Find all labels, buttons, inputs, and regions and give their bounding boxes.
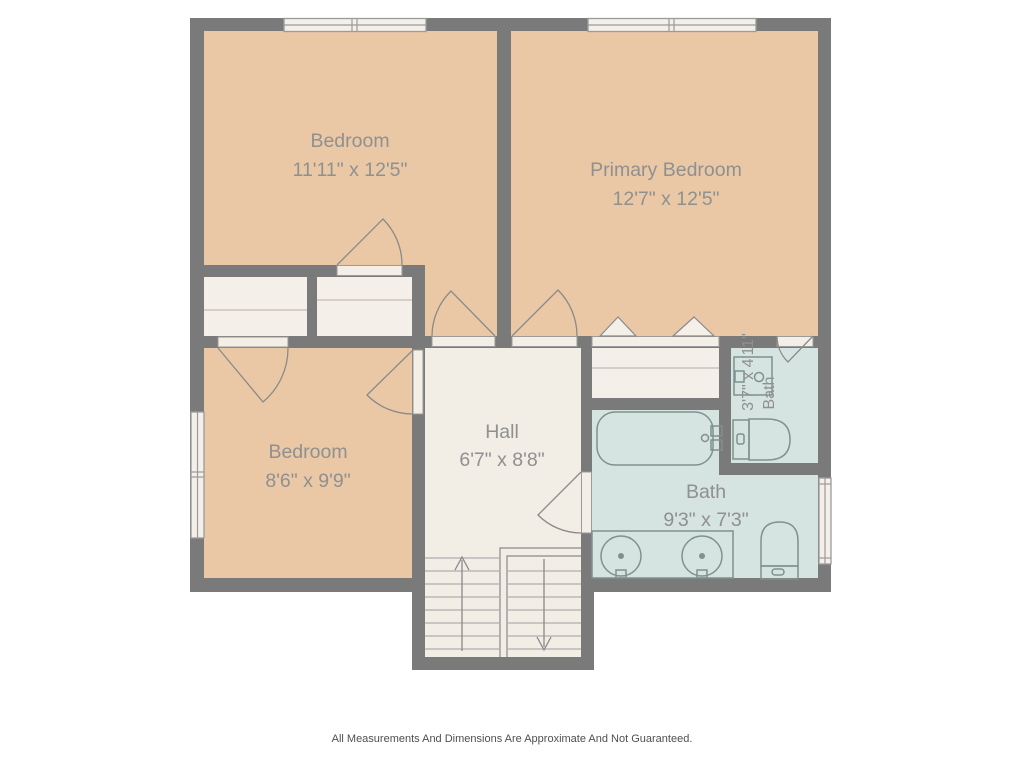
room-bedroom-bottom-left xyxy=(204,348,412,578)
label-bath-large-name: Bath xyxy=(686,481,726,503)
floor-plan-page: Bedroom 11'11" x 12'5" Primary Bedroom 1… xyxy=(0,0,1024,768)
window-icon-bath-large xyxy=(819,478,831,564)
footer-disclaimer: All Measurements And Dimensions Are Appr… xyxy=(332,733,693,745)
label-bedroom-bottom-left-dims: 8'6" x 9'9" xyxy=(265,470,350,492)
floor-plan-canvas: Bedroom 11'11" x 12'5" Primary Bedroom 1… xyxy=(0,0,1024,768)
label-bedroom-top-left-name: Bedroom xyxy=(310,130,389,152)
label-bedroom-top-left-dims: 11'11" x 12'5" xyxy=(293,159,408,181)
room-stairwell xyxy=(425,578,581,657)
window-icon-primary-bedroom xyxy=(588,19,756,32)
label-hall-dims: 6'7" x 8'8" xyxy=(459,449,544,471)
closet-right xyxy=(317,277,412,336)
closet-left xyxy=(204,277,307,336)
closet-primary xyxy=(592,348,719,398)
window-icon-bedroom-top-left xyxy=(284,19,426,32)
label-bath-small-name: Bath xyxy=(761,377,778,410)
label-bath-large-dims: 9'3" x 7'3" xyxy=(663,509,748,531)
label-hall-name: Hall xyxy=(485,421,519,443)
window-icon-bedroom-bottom-left xyxy=(191,412,204,538)
label-bedroom-bottom-left-name: Bedroom xyxy=(268,441,347,463)
label-primary-bedroom-name: Primary Bedroom xyxy=(590,159,742,181)
label-primary-bedroom-dims: 12'7" x 12'5" xyxy=(613,188,720,210)
label-bath-small-dims: 3'7" x 4'11" xyxy=(740,333,757,411)
